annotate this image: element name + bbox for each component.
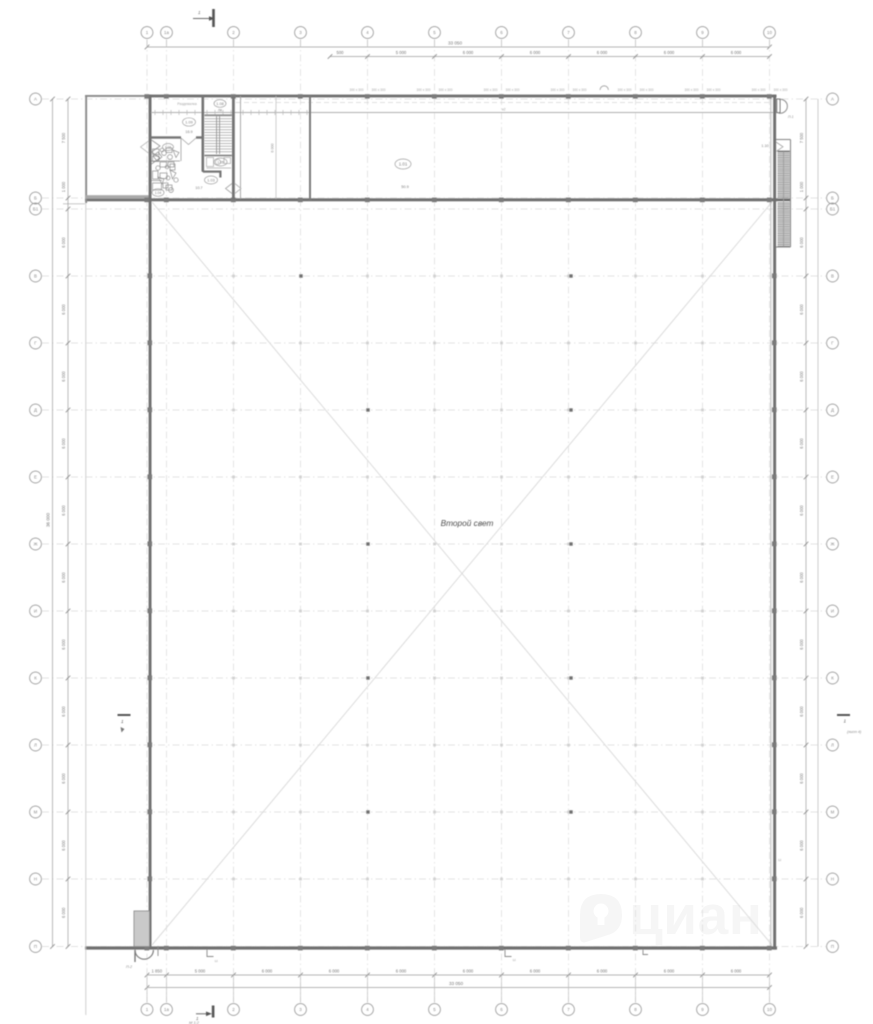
svg-text:Л: Л bbox=[34, 743, 37, 748]
svg-text:6 000: 6 000 bbox=[61, 840, 66, 851]
svg-text:300 х 300: 300 х 300 bbox=[573, 88, 587, 92]
svg-text:10.7: 10.7 bbox=[195, 186, 202, 190]
svg-text:6 000: 6 000 bbox=[799, 706, 804, 717]
svg-text:1а: 1а bbox=[164, 30, 169, 35]
svg-text:50.9: 50.9 bbox=[401, 184, 409, 189]
svg-text:300 х 300: 300 х 300 bbox=[372, 88, 386, 92]
svg-text:6 000: 6 000 bbox=[61, 572, 66, 583]
svg-text:6 000: 6 000 bbox=[61, 706, 66, 717]
svg-text:10: 10 bbox=[767, 1007, 772, 1012]
svg-text:500: 500 bbox=[337, 50, 345, 55]
svg-text:К: К bbox=[34, 676, 37, 681]
svg-text:300 х 300: 300 х 300 bbox=[617, 88, 631, 92]
svg-text:1: 1 bbox=[844, 719, 847, 724]
svg-text:6 000: 6 000 bbox=[463, 50, 474, 55]
svg-text:5 000: 5 000 bbox=[396, 50, 407, 55]
svg-text:6 000: 6 000 bbox=[799, 237, 804, 248]
svg-text:12: 12 bbox=[778, 858, 782, 862]
svg-text:300 х 300: 300 х 300 bbox=[439, 88, 453, 92]
svg-text:6 000: 6 000 bbox=[799, 907, 804, 918]
svg-text:300 х 300: 300 х 300 bbox=[550, 88, 564, 92]
svg-text:6 000: 6 000 bbox=[329, 969, 340, 974]
svg-text:6 000: 6 000 bbox=[799, 505, 804, 516]
svg-text:Д: Д bbox=[34, 408, 37, 413]
svg-text:Б: Б bbox=[34, 196, 37, 201]
svg-text:П-1: П-1 bbox=[788, 115, 794, 119]
svg-text:300 х 300: 300 х 300 bbox=[416, 88, 430, 92]
svg-text:6 000: 6 000 bbox=[799, 773, 804, 784]
svg-text:6 000: 6 000 bbox=[61, 237, 66, 248]
svg-text:Е: Е bbox=[34, 475, 37, 480]
svg-text:6 000: 6 000 bbox=[61, 371, 66, 382]
svg-text:6 000: 6 000 bbox=[597, 50, 608, 55]
svg-text:6 000: 6 000 bbox=[799, 371, 804, 382]
svg-text:33 050: 33 050 bbox=[448, 41, 462, 46]
svg-text:12: 12 bbox=[215, 959, 219, 963]
svg-text:1 000: 1 000 bbox=[799, 181, 804, 192]
svg-text:1.08: 1.08 bbox=[216, 102, 223, 106]
svg-text:1.06: 1.06 bbox=[165, 145, 171, 149]
svg-text:1.10: 1.10 bbox=[761, 144, 768, 148]
svg-text:6 000: 6 000 bbox=[463, 969, 474, 974]
svg-text:300 х 300: 300 х 300 bbox=[684, 88, 698, 92]
svg-text:6 000: 6 000 bbox=[799, 639, 804, 650]
svg-text:300 х 300: 300 х 300 bbox=[506, 88, 520, 92]
svg-text:Н: Н bbox=[831, 877, 834, 882]
svg-text:6 000: 6 000 bbox=[799, 304, 804, 315]
svg-text:300 х 300: 300 х 300 bbox=[751, 88, 765, 92]
svg-text:6 000: 6 000 bbox=[731, 50, 742, 55]
svg-text:6 000: 6 000 bbox=[271, 144, 275, 153]
svg-text:5 000: 5 000 bbox=[195, 969, 206, 974]
svg-text:и2: и2 bbox=[502, 108, 506, 112]
svg-text:М: М bbox=[831, 810, 835, 815]
svg-text:6 000: 6 000 bbox=[530, 50, 541, 55]
svg-text:А: А bbox=[34, 97, 37, 102]
svg-text:12: 12 bbox=[513, 958, 517, 962]
svg-text:П: П bbox=[34, 944, 37, 949]
svg-text:Е: Е bbox=[831, 475, 834, 480]
svg-text:6 000: 6 000 bbox=[664, 50, 675, 55]
svg-text:6 000: 6 000 bbox=[731, 969, 742, 974]
svg-text:Б: Б bbox=[831, 196, 834, 201]
svg-text:1.03: 1.03 bbox=[207, 178, 214, 182]
svg-text:П: П bbox=[831, 944, 834, 949]
svg-text:6 000: 6 000 bbox=[61, 907, 66, 918]
svg-text:Ж: Ж bbox=[830, 542, 834, 547]
svg-text:И: И bbox=[34, 609, 37, 614]
svg-text:Б1: Б1 bbox=[33, 207, 39, 212]
svg-text:36 000: 36 000 bbox=[46, 513, 51, 527]
svg-text:300 х 300: 300 х 300 bbox=[707, 88, 721, 92]
svg-text:Д: Д bbox=[831, 408, 834, 413]
svg-text:1а: 1а bbox=[164, 1007, 169, 1012]
svg-text:В: В bbox=[34, 274, 37, 279]
svg-text:6 000: 6 000 bbox=[799, 572, 804, 583]
svg-text:циан: циан bbox=[629, 884, 762, 946]
svg-text:1: 1 bbox=[198, 10, 201, 15]
svg-text:1.05: 1.05 bbox=[217, 160, 224, 164]
svg-text:Раздевалка: Раздевалка bbox=[177, 102, 197, 106]
svg-text:7 500: 7 500 bbox=[799, 132, 804, 143]
svg-text:А: А bbox=[831, 97, 834, 102]
svg-text:6 000: 6 000 bbox=[61, 505, 66, 516]
svg-text:6 000: 6 000 bbox=[799, 438, 804, 449]
svg-text:П-2: П-2 bbox=[126, 965, 133, 969]
svg-text:И: И bbox=[831, 609, 834, 614]
svg-text:Л: Л bbox=[831, 743, 834, 748]
svg-text:300 х 300: 300 х 300 bbox=[349, 88, 363, 92]
svg-text:1 000: 1 000 bbox=[61, 181, 66, 192]
svg-text:1: 1 bbox=[121, 719, 124, 724]
svg-text:300 х 300: 300 х 300 bbox=[774, 88, 788, 92]
svg-text:6 000: 6 000 bbox=[664, 969, 675, 974]
svg-text:33 050: 33 050 bbox=[449, 981, 463, 986]
svg-text:Ж: Ж bbox=[33, 542, 37, 547]
svg-text:1 850: 1 850 bbox=[152, 969, 163, 974]
svg-text:6 000: 6 000 bbox=[530, 969, 541, 974]
svg-text:К: К bbox=[831, 676, 834, 681]
svg-text:7 500: 7 500 bbox=[61, 132, 66, 143]
svg-text:В: В bbox=[831, 274, 834, 279]
svg-text:6 000: 6 000 bbox=[61, 304, 66, 315]
svg-text:Б1: Б1 bbox=[830, 207, 836, 212]
svg-text:М: М bbox=[34, 810, 38, 815]
svg-text:6 000: 6 000 bbox=[597, 969, 608, 974]
svg-text:10: 10 bbox=[767, 30, 772, 35]
svg-text:6 000: 6 000 bbox=[396, 969, 407, 974]
svg-text:Второй свет: Второй свет bbox=[441, 518, 494, 528]
svg-text:300 х 300: 300 х 300 bbox=[483, 88, 497, 92]
svg-text:6 000: 6 000 bbox=[61, 773, 66, 784]
svg-text:6 000: 6 000 bbox=[262, 969, 273, 974]
svg-text:Н: Н bbox=[34, 877, 37, 882]
svg-text:1.04: 1.04 bbox=[155, 191, 162, 195]
svg-text:16.9: 16.9 bbox=[185, 130, 192, 134]
svg-text:1.09: 1.09 bbox=[185, 120, 192, 124]
svg-text:(лист 4): (лист 4) bbox=[847, 730, 861, 734]
svg-text:6 000: 6 000 bbox=[61, 639, 66, 650]
svg-text:1.01: 1.01 bbox=[399, 161, 408, 166]
svg-text:300 х 300: 300 х 300 bbox=[640, 88, 654, 92]
svg-text:6 000: 6 000 bbox=[61, 438, 66, 449]
svg-text:6 000: 6 000 bbox=[799, 840, 804, 851]
svg-text:М 1:2: М 1:2 bbox=[189, 1020, 200, 1024]
svg-text:ЛК: ЛК bbox=[218, 109, 222, 113]
